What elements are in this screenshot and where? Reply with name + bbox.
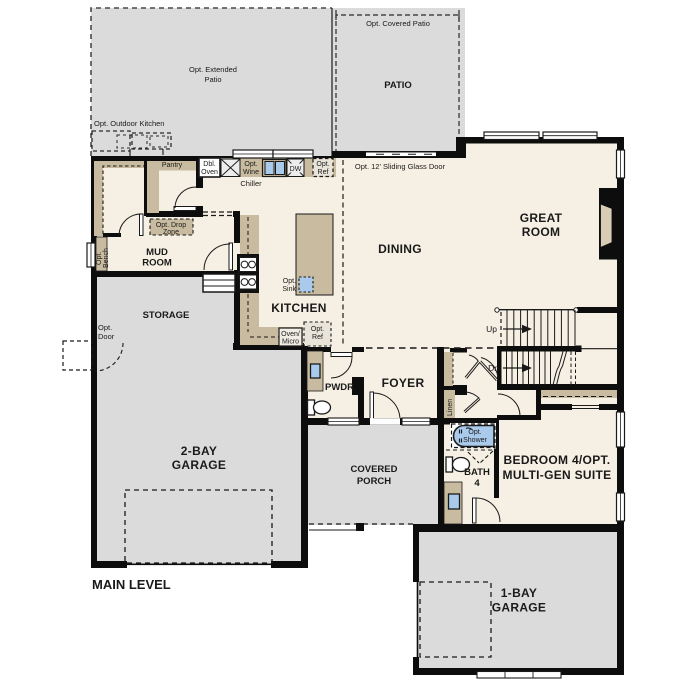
svg-text:PORCH: PORCH [357, 476, 391, 487]
svg-text:GARAGE: GARAGE [172, 458, 226, 472]
svg-text:MUD: MUD [146, 247, 168, 258]
svg-text:Opt.: Opt. [283, 278, 296, 285]
svg-text:GREAT: GREAT [520, 211, 563, 225]
svg-text:PATIO: PATIO [384, 80, 412, 91]
svg-text:DINING: DINING [378, 242, 422, 256]
svg-text:Micro: Micro [282, 339, 299, 346]
svg-text:Opt. 12' Sliding Glass Door: Opt. 12' Sliding Glass Door [355, 162, 446, 171]
svg-text:GARAGE: GARAGE [492, 601, 546, 615]
svg-text:DW: DW [290, 166, 302, 173]
svg-text:Opt. Covered Patio: Opt. Covered Patio [366, 19, 430, 28]
svg-text:Oven/: Oven/ [281, 331, 300, 338]
svg-text:Opt.: Opt. [98, 323, 112, 332]
svg-text:Opt.: Opt. [316, 161, 329, 168]
svg-text:Shower: Shower [463, 437, 487, 444]
svg-text:4: 4 [474, 478, 480, 489]
svg-text:Oven: Oven [201, 169, 218, 176]
svg-text:Opt.: Opt. [96, 252, 103, 265]
svg-text:Up: Up [486, 324, 497, 334]
svg-text:Opt. Outdoor Kitchen: Opt. Outdoor Kitchen [94, 119, 164, 128]
svg-text:ROOM: ROOM [522, 225, 561, 239]
svg-text:Chiller: Chiller [240, 179, 262, 188]
svg-text:1-BAY: 1-BAY [501, 586, 537, 600]
svg-text:Ref: Ref [312, 334, 323, 341]
svg-text:COVERED: COVERED [351, 464, 398, 475]
svg-text:Bench: Bench [103, 248, 110, 268]
svg-text:MAIN LEVEL: MAIN LEVEL [92, 577, 171, 592]
svg-text:Opt.: Opt. [244, 161, 257, 168]
svg-text:KITCHEN: KITCHEN [271, 301, 326, 315]
svg-text:Wine: Wine [243, 169, 259, 176]
svg-text:Patio: Patio [204, 75, 221, 84]
svg-text:BEDROOM 4/OPT.: BEDROOM 4/OPT. [504, 453, 611, 467]
svg-text:ROOM: ROOM [142, 258, 172, 269]
svg-text:Sink: Sink [282, 286, 296, 293]
svg-text:Opt. Extended: Opt. Extended [189, 65, 237, 74]
svg-text:BATH: BATH [464, 467, 490, 478]
svg-text:Zone: Zone [163, 229, 179, 236]
svg-text:Dbl.: Dbl. [203, 161, 216, 168]
svg-text:Pantry: Pantry [162, 162, 183, 169]
svg-text:Opt.: Opt. [311, 326, 324, 333]
svg-text:Door: Door [98, 332, 115, 341]
svg-text:PWDR: PWDR [325, 382, 354, 393]
svg-text:Opt.: Opt. [468, 429, 481, 436]
svg-text:Dn: Dn [488, 363, 499, 373]
svg-text:Linen: Linen [447, 399, 454, 416]
svg-text:FOYER: FOYER [382, 376, 425, 390]
svg-text:2-BAY: 2-BAY [181, 444, 217, 458]
svg-text:MULTI-GEN SUITE: MULTI-GEN SUITE [503, 468, 612, 482]
svg-text:Ref: Ref [318, 169, 329, 176]
svg-text:STORAGE: STORAGE [143, 310, 190, 321]
svg-text:Opt. Drop: Opt. Drop [156, 222, 186, 229]
